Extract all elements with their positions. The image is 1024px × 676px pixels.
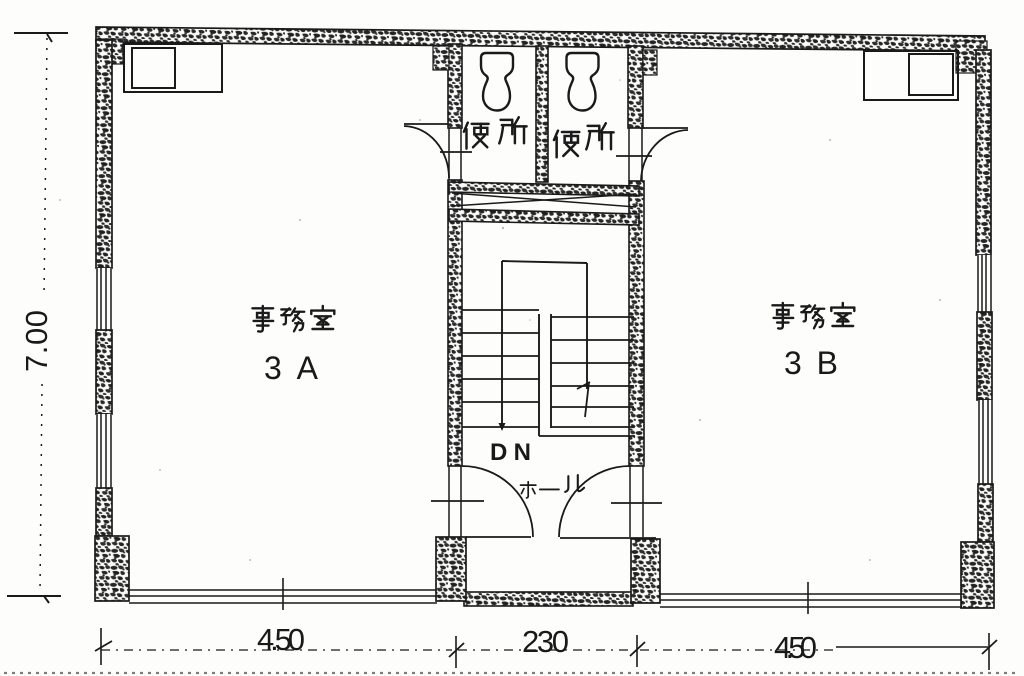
svg-text:230: 230: [522, 624, 569, 659]
svg-text:4.50: 4.50: [774, 630, 817, 665]
svg-text:7.00: 7.00: [19, 310, 54, 372]
svg-text:4.50: 4.50: [257, 622, 305, 657]
svg-text:3 B: 3 B: [784, 345, 838, 381]
svg-text:3 A: 3 A: [264, 350, 319, 386]
